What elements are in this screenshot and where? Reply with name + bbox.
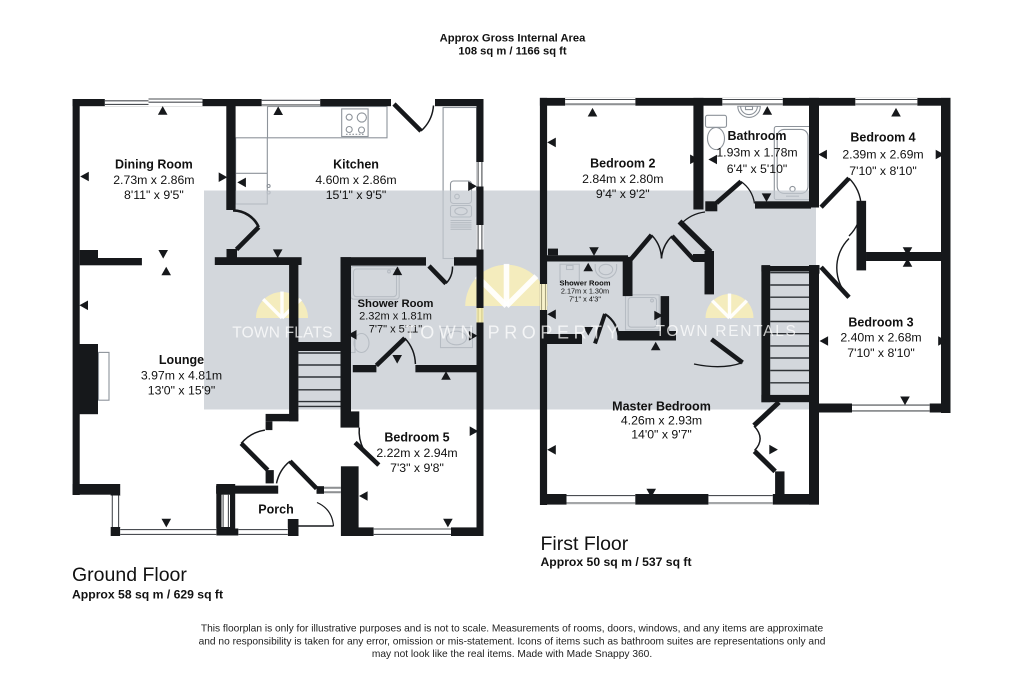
svg-text:Porch: Porch [258,503,293,517]
svg-text:3.97m x 4.81m: 3.97m x 4.81m [141,368,222,382]
svg-text:8'11" x 9'5": 8'11" x 9'5" [124,188,184,202]
svg-text:TOWN PROPERTY: TOWN PROPERTY [405,323,623,343]
svg-text:Shower Room: Shower Room [358,298,434,310]
svg-text:Bedroom 2: Bedroom 2 [590,157,655,171]
svg-text:2.39m x 2.69m: 2.39m x 2.69m [842,147,923,161]
svg-text:2.84m x 2.80m: 2.84m x 2.80m [582,172,663,186]
svg-text:Bedroom 5: Bedroom 5 [384,431,449,445]
svg-text:This floorplan is only for ill: This floorplan is only for illustrative … [201,624,824,635]
svg-text:7'3" x 9'8": 7'3" x 9'8" [390,461,444,475]
svg-text:2.40m x 2.68m: 2.40m x 2.68m [840,331,921,345]
svg-text:Lounge: Lounge [159,353,204,367]
svg-text:6'4" x 5'10": 6'4" x 5'10" [727,162,788,176]
svg-text:2.22m x 2.94m: 2.22m x 2.94m [376,446,457,460]
svg-text:Bedroom 3: Bedroom 3 [848,316,913,330]
svg-text:Approx 58 sq m / 629 sq ft: Approx 58 sq m / 629 sq ft [72,588,223,602]
svg-text:Bathroom: Bathroom [727,129,786,143]
svg-text:Bedroom 4: Bedroom 4 [850,131,915,145]
svg-text:9'4" x 9'2": 9'4" x 9'2" [596,187,650,201]
svg-text:Dining Room: Dining Room [115,158,193,172]
svg-text:Master Bedroom: Master Bedroom [612,400,711,414]
svg-text:Approx 50 sq m / 537 sq ft: Approx 50 sq m / 537 sq ft [541,555,692,569]
svg-text:may not look like the real ite: may not look like the real items. Made w… [372,649,652,660]
svg-text:4.60m x 2.86m: 4.60m x 2.86m [315,173,396,187]
svg-text:13'0" x 15'9": 13'0" x 15'9" [148,384,215,398]
svg-text:TOWN RENTALS: TOWN RENTALS [655,323,797,340]
svg-text:7'10" x 8'10": 7'10" x 8'10" [847,346,914,360]
svg-text:First Floor: First Floor [541,533,629,555]
svg-text:14'0" x 9'7": 14'0" x 9'7" [631,428,692,442]
svg-text:1.93m x 1.78m: 1.93m x 1.78m [716,146,797,160]
svg-text:2.32m x 1.81m: 2.32m x 1.81m [359,311,432,323]
svg-text:Ground Floor: Ground Floor [72,564,187,586]
svg-text:2.73m x 2.86m: 2.73m x 2.86m [113,173,194,187]
svg-text:Kitchen: Kitchen [333,158,379,172]
svg-text:7'1" x 4'3": 7'1" x 4'3" [569,295,601,304]
svg-text:4.26m x 2.93m: 4.26m x 2.93m [621,414,702,428]
svg-text:15'1" x 9'5": 15'1" x 9'5" [326,188,387,202]
svg-text:108 sq m / 1166 sq ft: 108 sq m / 1166 sq ft [458,46,566,58]
svg-text:Approx Gross Internal Area: Approx Gross Internal Area [440,33,586,45]
svg-text:7'10" x 8'10": 7'10" x 8'10" [849,164,916,178]
svg-text:TOWN FLATS: TOWN FLATS [232,325,332,342]
svg-text:and no responsibility is taken: and no responsibility is taken for any e… [199,636,826,647]
